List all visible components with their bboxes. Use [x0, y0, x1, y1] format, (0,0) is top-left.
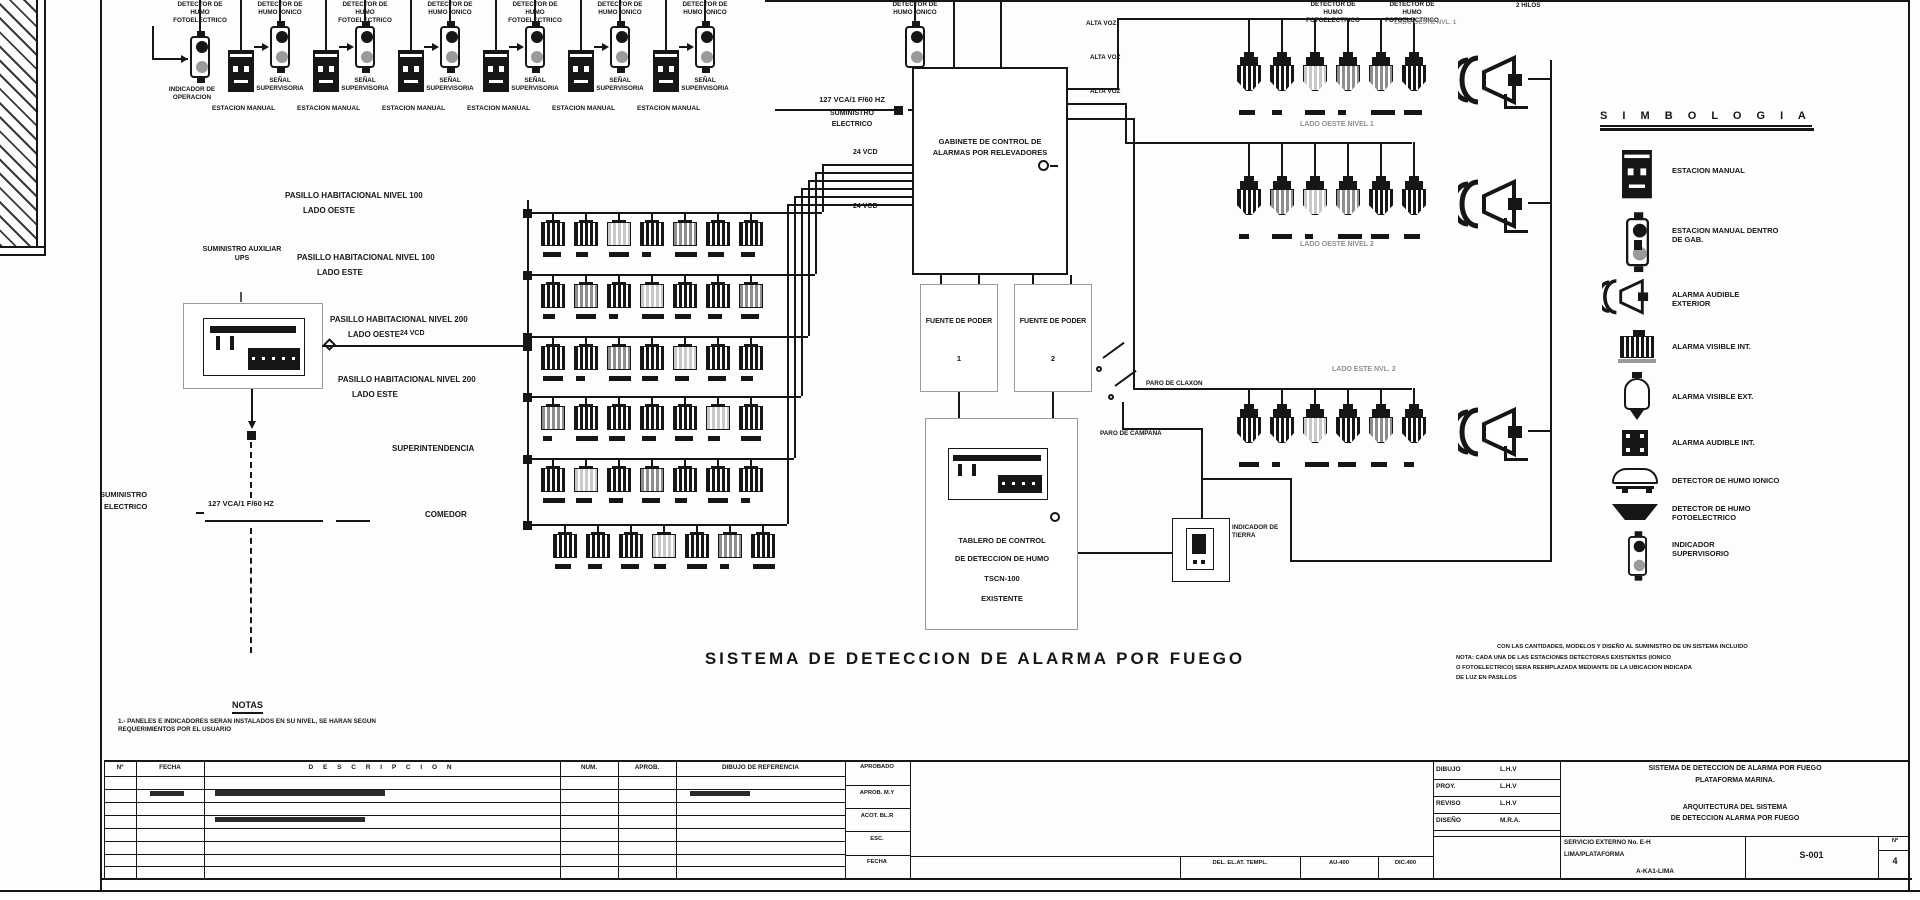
- supply-label: SUMINISTRO: [100, 490, 147, 499]
- tb-sheet-number: 4: [1882, 856, 1908, 867]
- tb-header: D E S C R I P C I O N: [206, 764, 558, 772]
- detector-label: DETECTOR DE HUMO IONICO: [593, 1, 647, 17]
- notes-title: NOTAS: [232, 700, 263, 714]
- zone-label: PASILLO HABITACIONAL NIVEL 200: [338, 375, 476, 385]
- legend-item-label: DETECTOR DE HUMO IONICO: [1672, 476, 1779, 485]
- tb-drawing-number: S-001: [1747, 850, 1876, 861]
- estacion-manual-label: ESTACION MANUAL: [467, 105, 525, 113]
- supply-label: SUMINISTRO: [802, 110, 902, 119]
- zone-label: LADO OESTE NVL. 1: [1394, 19, 1456, 27]
- psu-number: 1: [924, 354, 994, 363]
- tb-stamp-key: DIBUJO: [1436, 766, 1461, 774]
- tb-service: LIMA/PLATAFORMA: [1564, 851, 1624, 859]
- tablero-model: TSCN-100: [928, 574, 1076, 583]
- estacion-manual-label: ESTACION MANUAL: [297, 105, 355, 113]
- supply-label: ELECTRICO: [802, 121, 902, 130]
- estacion-manual-label: ESTACION MANUAL: [212, 105, 270, 113]
- alta-voz-label: ALTA VOZ: [1090, 88, 1120, 96]
- tablero-status: EXISTENTE: [928, 594, 1076, 603]
- detector-label: DETECTOR DE HUMO FOTOELECTRICO: [173, 1, 227, 25]
- supply-value: 127 VCA/1 F/60 HZ: [782, 95, 922, 104]
- zone-label: LADO OESTE NIVEL 2: [1300, 241, 1374, 250]
- psu-number: 2: [1018, 354, 1088, 363]
- detector-label: DETECTOR DE HUMO IONICO: [888, 1, 942, 17]
- detector-label: DETECTOR DE HUMO FOTOELECTRICO: [338, 1, 392, 25]
- detector-label: DETECTOR DE HUMO FOTOELECTRICO: [508, 1, 562, 25]
- tb-subtitle: DE DETECCION ALARMA POR FUEGO: [1563, 815, 1907, 824]
- legend-item-label: DETECTOR DE HUMO FOTOELECTRICO: [1672, 504, 1788, 523]
- zone-label: COMEDOR: [425, 510, 467, 520]
- drawing-title: SISTEMA DE DETECCION DE ALARMA POR FUEGO: [690, 648, 1260, 669]
- note-line: DE LUZ EN PASILLOS: [1456, 675, 1517, 682]
- zone-label: LADO ESTE NVL. 2: [1332, 366, 1396, 375]
- detector-label: DETECTOR DE HUMO IONICO: [423, 1, 477, 17]
- tb-cell: ACOT. BL.R: [846, 813, 908, 820]
- supply-value: 127 VCA/1 F/60 HZ: [208, 499, 274, 508]
- tb-project-title: SISTEMA DE DETECCION DE ALARMA POR FUEGO: [1563, 765, 1907, 774]
- tb-service: SERVICIO EXTERNO No. E-H: [1564, 839, 1651, 847]
- zone-label: LADO OESTE: [348, 330, 400, 340]
- estacion-manual-label: ESTACION MANUAL: [637, 105, 695, 113]
- senal-supervisoria-label: SEÑAL SUPERVISORIA: [424, 77, 476, 93]
- vcd-label: 24 VCD: [853, 149, 878, 158]
- tb-header: Nº: [106, 764, 134, 772]
- legend-item-label: ALARMA VISIBLE INT.: [1672, 342, 1751, 351]
- tablero-label: TABLERO DE CONTROL: [928, 536, 1076, 545]
- senal-supervisoria-label: SEÑAL SUPERVISORIA: [594, 77, 646, 93]
- senal-supervisoria-label: SEÑAL SUPERVISORIA: [679, 77, 731, 93]
- tb-header: APROBADO: [846, 764, 908, 771]
- legend-item-label: ALARMA AUDIBLE INT.: [1672, 438, 1755, 447]
- tb-stamp-val: L.H.V: [1500, 800, 1517, 808]
- supply-label: ELECTRICO: [104, 502, 147, 511]
- tablero-label: DE DETECCION DE HUMO: [928, 554, 1076, 563]
- claxon-switch-label: PARO DE CLAXON: [1146, 380, 1203, 388]
- tb-header: DIBUJO DE REFERENCIA: [678, 764, 843, 772]
- legend-item-label: ALARMA AUDIBLE EXTERIOR: [1672, 290, 1768, 309]
- tb-cell: DIC.400: [1380, 860, 1431, 867]
- note-line: CON LAS CANTIDADES, MODELOS Y DISEÑO AL …: [1497, 644, 1748, 651]
- tb-cell: DEL. EL.AT. TEMPL.: [1182, 860, 1298, 867]
- legend-title: S I M B O L O G I A: [1600, 110, 1812, 127]
- zone-label: PASILLO HABITACIONAL NIVEL 200: [330, 315, 468, 325]
- tb-stamp-key: DISEÑO: [1436, 817, 1461, 825]
- estacion-manual-label: ESTACION MANUAL: [382, 105, 440, 113]
- zone-label: SUPERINTENDENCIA: [392, 444, 474, 454]
- ups-label: SUMINISTRO AUXILIAR UPS: [198, 246, 286, 264]
- tb-stamp-key: REVISO: [1436, 800, 1461, 808]
- zone-label: LADO OESTE NIVEL 1: [1300, 121, 1374, 130]
- detector-label: DETECTOR DE HUMO FOTOELECTRICO: [1306, 1, 1360, 25]
- tb-stamp-val: L.H.V: [1500, 783, 1517, 791]
- vcd-label: 24 VCD: [400, 330, 425, 339]
- tb-project-title: PLATAFORMA MARINA.: [1563, 777, 1907, 786]
- note-line: O FOTOELECTRICO) SERA REEMPLAZADA MEDIAN…: [1456, 665, 1692, 672]
- tb-header: FECHA: [138, 764, 202, 772]
- vcd-label: 24 VCD: [853, 203, 878, 212]
- tb-stamp-key: PROY.: [1436, 783, 1456, 791]
- tb-service: A-KA1-LIMA: [1575, 868, 1735, 876]
- detector-label: DETECTOR DE HUMO IONICO: [678, 1, 732, 17]
- alta-voz-label: ALTA VOZ: [1086, 20, 1116, 28]
- note-line: NOTA: CADA UNA DE LAS ESTACIONES DETECTO…: [1456, 655, 1671, 662]
- zone-label: PASILLO HABITACIONAL NIVEL 100: [297, 253, 435, 263]
- alta-voz-label: ALTA VOZ: [1090, 54, 1120, 62]
- legend-item-label: ESTACION MANUAL: [1672, 166, 1745, 175]
- zone-label: LADO OESTE: [303, 206, 355, 216]
- tb-cell: AU-400: [1302, 860, 1376, 867]
- zone-label: LADO ESTE: [352, 390, 398, 400]
- tb-cell: ESC.: [846, 836, 908, 843]
- campana-switch-label: PARO DE CAMPANA: [1100, 430, 1162, 438]
- psu-label: FUENTE DE PODER: [1018, 318, 1088, 327]
- legend-item-label: INDICADOR SUPERVISORIO: [1672, 540, 1768, 559]
- tb-sheet-label: Nº: [1882, 838, 1908, 845]
- tb-header: APROB.: [620, 764, 674, 772]
- tb-subtitle: ARQUITECTURA DEL SISTEMA: [1563, 804, 1907, 813]
- detector-label: DETECTOR DE HUMO IONICO: [253, 1, 307, 17]
- tb-stamp-val: L.H.V: [1500, 766, 1517, 774]
- notes-body: 1.- PANELES E INDICADORES SERAN INSTALAD…: [118, 718, 400, 734]
- drawing-sheet: DETECTOR DE HUMO FOTOELECTRICO DETECTOR …: [0, 0, 1920, 900]
- tb-header: NUM.: [562, 764, 616, 772]
- senal-supervisoria-label: SEÑAL SUPERVISORIA: [254, 77, 306, 93]
- zone-label: PASILLO HABITACIONAL NIVEL 100: [285, 191, 423, 201]
- tierra-label: INDICADOR DE TIERRA: [1232, 524, 1296, 540]
- estacion-manual-label: ESTACION MANUAL: [552, 105, 610, 113]
- tb-cell: FECHA: [846, 859, 908, 866]
- senal-supervisoria-label: SEÑAL SUPERVISORIA: [339, 77, 391, 93]
- tb-stamp-val: M.R.A.: [1500, 817, 1520, 825]
- senal-supervisoria-label: SEÑAL SUPERVISORIA: [509, 77, 561, 93]
- psu-label: FUENTE DE PODER: [924, 318, 994, 327]
- indicador-operacion-label: INDICADOR DE OPERACION: [164, 86, 220, 102]
- hilos-label: 2 HILOS: [1516, 2, 1541, 10]
- cabinet-label: GABINETE DE CONTROL DE ALARMAS POR RELEV…: [928, 136, 1052, 159]
- legend-item-label: ESTACION MANUAL DENTRO DE GAB.: [1672, 226, 1784, 245]
- legend-item-label: ALARMA VISIBLE EXT.: [1672, 392, 1753, 401]
- zone-label: LADO ESTE: [317, 268, 363, 278]
- tb-cell: APROB. M.Y: [846, 790, 908, 797]
